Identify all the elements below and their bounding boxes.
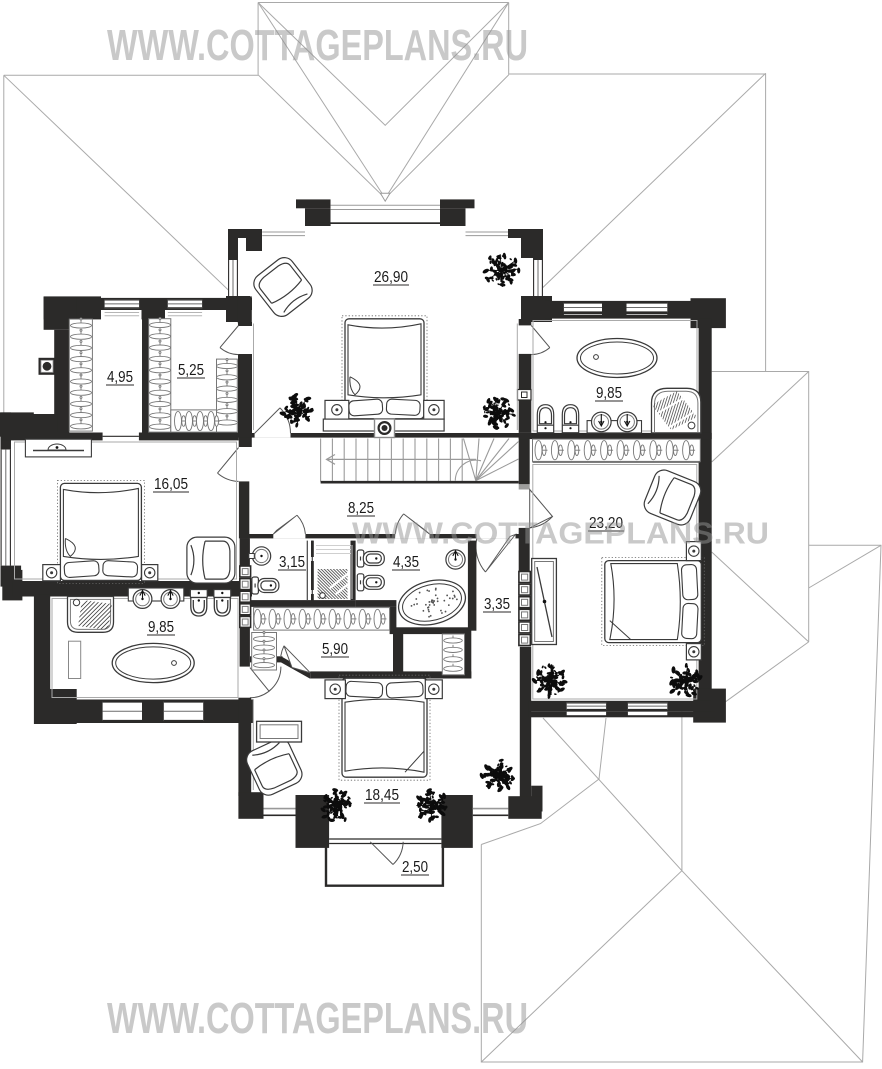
svg-text:3,35: 3,35: [484, 596, 510, 613]
svg-text:4,95: 4,95: [107, 369, 133, 386]
svg-text:WWW.COTTAGEPLANS.RU: WWW.COTTAGEPLANS.RU: [107, 21, 528, 70]
svg-text:5,90: 5,90: [322, 641, 348, 658]
svg-text:9,85: 9,85: [148, 619, 174, 636]
svg-text:3,15: 3,15: [279, 554, 305, 571]
svg-text:8,25: 8,25: [348, 500, 374, 517]
svg-text:16,05: 16,05: [154, 476, 188, 493]
svg-text:2,50: 2,50: [402, 859, 428, 876]
svg-text:WWW.COTTAGEPLANS.RU: WWW.COTTAGEPLANS.RU: [352, 516, 769, 551]
svg-text:9,85: 9,85: [596, 385, 622, 402]
svg-text:WWW.COTTAGEPLANS.RU: WWW.COTTAGEPLANS.RU: [107, 994, 528, 1043]
svg-text:5,25: 5,25: [178, 362, 204, 379]
svg-text:26,90: 26,90: [374, 269, 408, 286]
svg-text:18,45: 18,45: [365, 787, 399, 804]
svg-text:4,35: 4,35: [393, 554, 419, 571]
